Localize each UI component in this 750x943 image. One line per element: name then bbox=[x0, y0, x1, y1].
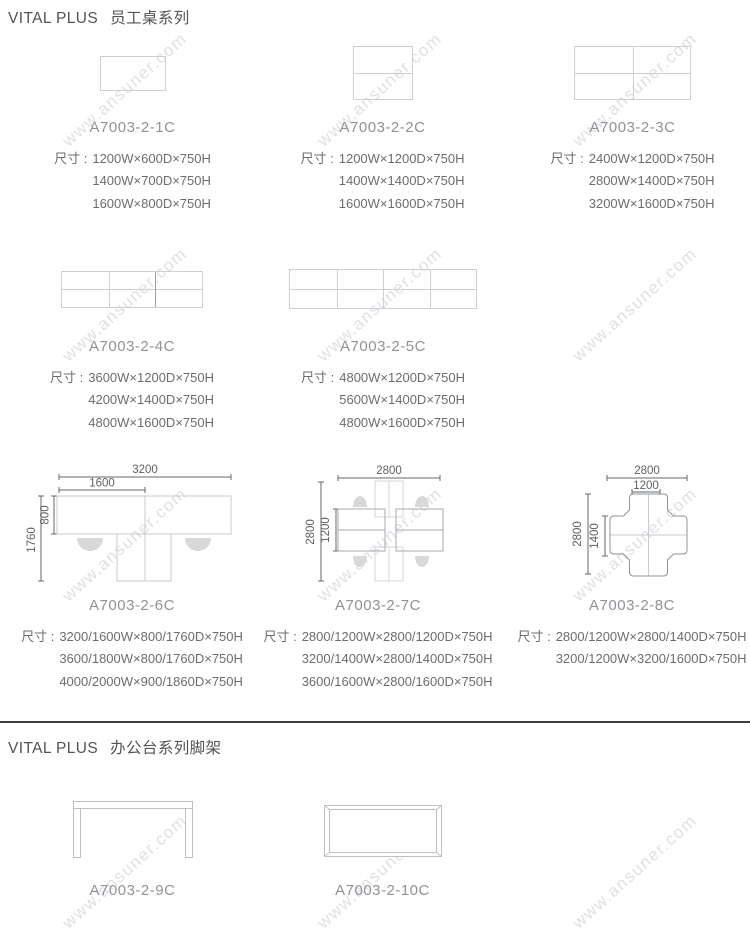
leg-frame-diagram-open bbox=[40, 793, 225, 869]
product-code: A7003-2-9C bbox=[40, 881, 225, 900]
size-list: 尺寸 : 1200W×1200D×750H 1400W×1400D×750H 1… bbox=[290, 148, 475, 215]
size-list: 尺寸 : 3600W×1200D×750H 4200W×1400D×750H 4… bbox=[28, 367, 236, 434]
product-card-a7003-2-8c: 2800 1200 2800 1400 A7003-2-8C 尺寸 : 2800… bbox=[518, 458, 746, 671]
dim-label-total-width: 2800 bbox=[376, 465, 402, 477]
size-row: 3200/1200W×3200/1600D×750H bbox=[556, 648, 747, 670]
size-prefix: 尺寸 : bbox=[50, 367, 83, 434]
desk-diagram-face-to-face bbox=[290, 42, 475, 104]
size-list: 尺寸 : 2800/1200W×2800/1400D×750H 3200/120… bbox=[518, 626, 746, 671]
product-card-a7003-2-4c: A7003-2-4C 尺寸 : 3600W×1200D×750H 4200W×1… bbox=[28, 266, 236, 434]
section-title-leg-frames: VITAL PLUS办公台系列脚架 bbox=[8, 736, 221, 758]
desk-diagram-single bbox=[40, 42, 225, 104]
product-card-a7003-2-9c: A7003-2-9C bbox=[40, 793, 225, 900]
size-prefix: 尺寸 : bbox=[551, 148, 584, 215]
desk-diagram-3x2 bbox=[28, 266, 236, 312]
product-code: A7003-2-8C bbox=[518, 596, 746, 615]
size-row: 3600/1800W×800/1760D×750H bbox=[59, 648, 243, 670]
desk-top-outline bbox=[353, 46, 413, 100]
desk-diagram-pinwheel: 2800 2800 1200 bbox=[264, 458, 492, 590]
size-list: 尺寸 : 3200/1600W×800/1760D×750H 3600/1800… bbox=[18, 626, 246, 693]
size-row: 1600W×800D×750H bbox=[92, 193, 211, 215]
section-divider bbox=[0, 721, 750, 723]
size-row: 4000/2000W×900/1860D×750H bbox=[59, 671, 243, 693]
size-row: 1200W×600D×750H bbox=[92, 148, 211, 170]
size-list: 尺寸 : 2400W×1200D×750H 2800W×1400D×750H 3… bbox=[540, 148, 725, 215]
series-text: 员工桌系列 bbox=[110, 10, 190, 27]
product-code: A7003-2-5C bbox=[276, 337, 490, 356]
size-prefix: 尺寸 : bbox=[517, 626, 550, 671]
desk-top-outline bbox=[100, 56, 166, 91]
dim-label-inner-depth: 1400 bbox=[589, 523, 601, 549]
desk-top-outline bbox=[289, 269, 477, 309]
size-row: 4800W×1600D×750H bbox=[88, 412, 214, 434]
dim-label-total-width: 2800 bbox=[634, 465, 660, 477]
desk-top-outline bbox=[574, 46, 691, 100]
size-row: 3200W×1600D×750H bbox=[589, 193, 715, 215]
desk-diagram-4x2 bbox=[276, 266, 490, 312]
product-code: A7003-2-6C bbox=[18, 596, 246, 615]
size-row: 3600/1600W×2800/1600D×750H bbox=[302, 671, 493, 693]
chair-icon bbox=[415, 556, 429, 567]
size-prefix: 尺寸 : bbox=[21, 626, 54, 693]
size-row: 2800/1200W×2800/1400D×750H bbox=[556, 626, 747, 648]
size-row: 1400W×700D×750H bbox=[92, 170, 211, 192]
chair-icon bbox=[77, 538, 103, 551]
section-title-workstations: VITAL PLUS员工桌系列 bbox=[8, 6, 190, 28]
product-card-a7003-2-5c: A7003-2-5C 尺寸 : 4800W×1200D×750H 5600W×1… bbox=[276, 266, 490, 434]
size-prefix: 尺寸 : bbox=[263, 626, 296, 693]
size-row: 2800W×1400D×750H bbox=[589, 170, 715, 192]
chair-icon bbox=[185, 538, 211, 551]
watermark: www.ansuner.com bbox=[569, 244, 702, 366]
product-code: A7003-2-2C bbox=[290, 118, 475, 137]
product-code: A7003-2-7C bbox=[264, 596, 492, 615]
dim-label-total-width: 3200 bbox=[132, 464, 158, 476]
product-card-a7003-2-2c: A7003-2-2C 尺寸 : 1200W×1200D×750H 1400W×1… bbox=[290, 42, 475, 215]
leg-frame-diagram-closed bbox=[290, 793, 475, 869]
product-card-a7003-2-7c: 2800 2800 1200 A7003-2-7C 尺寸 : 280 bbox=[264, 458, 492, 693]
dim-label-total-depth: 1760 bbox=[26, 527, 38, 553]
dim-label-total-depth: 2800 bbox=[572, 521, 584, 547]
size-prefix: 尺寸 : bbox=[54, 148, 87, 215]
dim-label-half-width: 1600 bbox=[89, 478, 115, 490]
product-code: A7003-2-4C bbox=[28, 337, 236, 356]
size-row: 1200W×1200D×750H bbox=[339, 148, 465, 170]
product-card-a7003-2-1c: A7003-2-1C 尺寸 : 1200W×600D×750H 1400W×70… bbox=[40, 42, 225, 215]
size-row: 5600W×1400D×750H bbox=[339, 389, 465, 411]
size-row: 4200W×1400D×750H bbox=[88, 389, 214, 411]
watermark: www.ansuner.com bbox=[569, 811, 702, 933]
brand-text: VITAL PLUS bbox=[8, 740, 98, 757]
size-row: 3200/1600W×800/1760D×750H bbox=[59, 626, 243, 648]
product-code: A7003-2-1C bbox=[40, 118, 225, 137]
size-prefix: 尺寸 : bbox=[301, 367, 334, 434]
size-row: 2400W×1200D×750H bbox=[589, 148, 715, 170]
dim-label-inner-width: 1200 bbox=[633, 480, 659, 492]
brand-text: VITAL PLUS bbox=[8, 10, 98, 27]
size-row: 1400W×1400D×750H bbox=[339, 170, 465, 192]
size-row: 4800W×1200D×750H bbox=[339, 367, 465, 389]
size-row: 2800/1200W×2800/1200D×750H bbox=[302, 626, 493, 648]
size-row: 1600W×1600D×750H bbox=[339, 193, 465, 215]
size-list: 尺寸 : 2800/1200W×2800/1200D×750H 3200/140… bbox=[264, 626, 492, 693]
size-list: 尺寸 : 1200W×600D×750H 1400W×700D×750H 160… bbox=[40, 148, 225, 215]
product-card-a7003-2-3c: A7003-2-3C 尺寸 : 2400W×1200D×750H 2800W×1… bbox=[540, 42, 725, 215]
desk-diagram-t-shape: 3200 1600 1760 800 bbox=[18, 458, 246, 590]
product-code: A7003-2-10C bbox=[290, 881, 475, 900]
chair-icon bbox=[415, 496, 429, 507]
size-row: 4800W×1600D×750H bbox=[339, 412, 465, 434]
desk-diagram-2x2 bbox=[540, 42, 725, 104]
dim-label-bar-depth: 800 bbox=[40, 505, 52, 524]
size-row: 3600W×1200D×750H bbox=[88, 367, 214, 389]
series-text: 办公台系列脚架 bbox=[110, 740, 221, 757]
size-row: 3200/1400W×2800/1400D×750H bbox=[302, 648, 493, 670]
dim-label-total-depth: 2800 bbox=[305, 519, 317, 545]
product-card-a7003-2-10c: A7003-2-10C bbox=[290, 793, 475, 900]
size-prefix: 尺寸 : bbox=[301, 148, 334, 215]
dim-label-inner-depth: 1200 bbox=[320, 517, 332, 543]
product-code: A7003-2-3C bbox=[540, 118, 725, 137]
chair-icon bbox=[353, 496, 367, 507]
desk-top-outline bbox=[61, 271, 203, 308]
size-list: 尺寸 : 4800W×1200D×750H 5600W×1400D×750H 4… bbox=[276, 367, 490, 434]
product-card-a7003-2-6c: 3200 1600 1760 800 A7003-2-6C 尺寸 : bbox=[18, 458, 246, 693]
desk-diagram-cross: 2800 1200 2800 1400 bbox=[518, 458, 746, 590]
catalog-page: www.ansuner.comwww.ansuner.comwww.ansune… bbox=[0, 0, 750, 943]
chair-icon bbox=[353, 556, 367, 567]
